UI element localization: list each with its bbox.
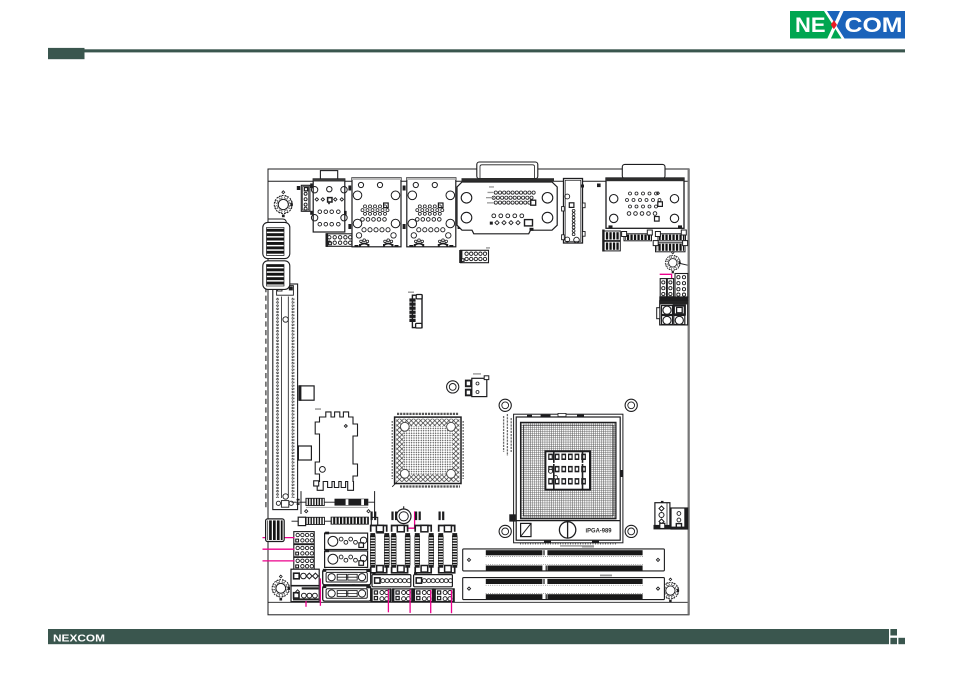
svg-text:iPGA-989: iPGA-989	[586, 528, 612, 535]
svg-text:COM: COM	[845, 13, 903, 37]
svg-text:NE: NE	[795, 13, 826, 37]
svg-text:NEXCOM: NEXCOM	[53, 632, 105, 644]
